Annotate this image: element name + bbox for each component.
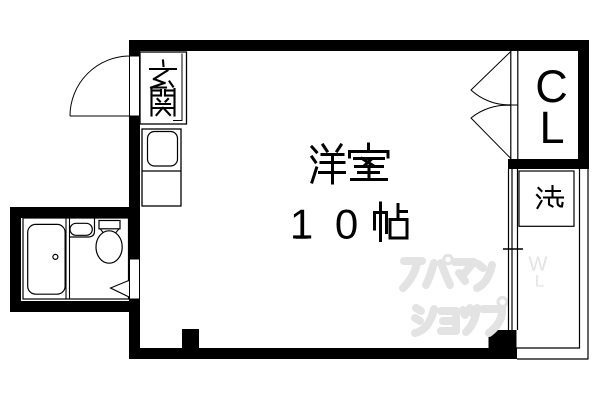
svg-text:L: L	[535, 272, 544, 291]
svg-text:L: L	[539, 102, 564, 153]
svg-text:0: 0	[335, 201, 358, 248]
svg-text:1: 1	[290, 201, 313, 248]
